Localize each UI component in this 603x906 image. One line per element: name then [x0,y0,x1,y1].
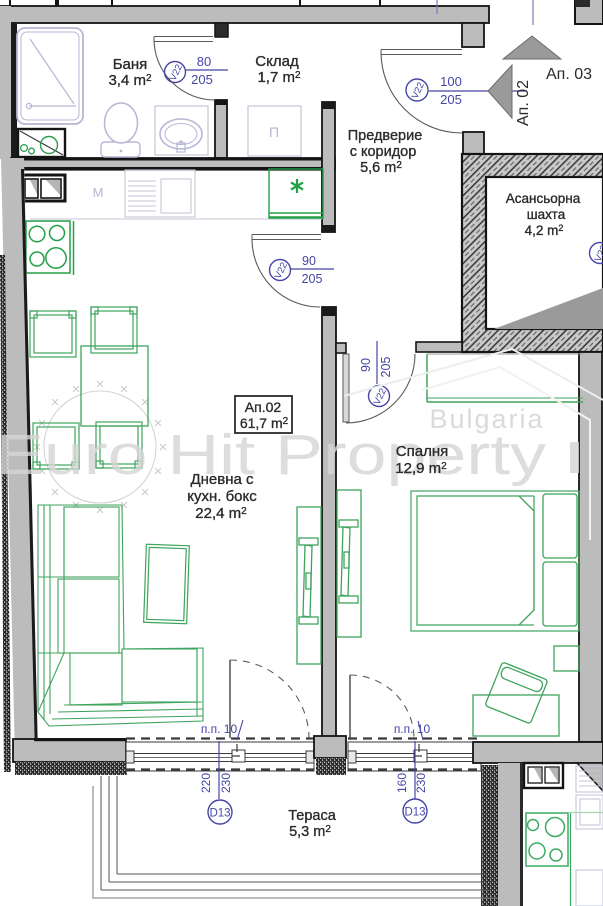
svg-text:22,4 m2: 22,4 m2 [195,505,247,522]
svg-text:шахта: шахта [527,207,566,222]
svg-text:Предверие: Предверие [348,128,423,144]
svg-text:1,7 m2: 1,7 m2 [257,69,301,86]
svg-text:Тераса: Тераса [288,808,336,824]
svg-text:Склад: Склад [255,53,299,70]
svg-text:160: 160 [395,773,409,793]
svg-text:Ап. 02: Ап. 02 [515,80,532,126]
svg-text:100: 100 [440,74,462,89]
svg-text:Асансьорна: Асансьорна [506,191,581,206]
svg-text:D13: D13 [209,808,230,820]
svg-text:Ап.02: Ап.02 [245,399,282,415]
svg-text:Ап. 03: Ап. 03 [546,66,592,83]
svg-text:230: 230 [414,773,428,793]
svg-text:205: 205 [379,357,393,378]
svg-text:205: 205 [191,72,213,87]
svg-text:Баня: Баня [113,56,148,73]
svg-text:Спалня: Спалня [396,443,448,460]
svg-text:205: 205 [440,92,462,107]
svg-text:220: 220 [199,773,213,793]
svg-text:3,4 m2: 3,4 m2 [108,72,152,89]
svg-text:п.п. 10: п.п. 10 [201,722,238,736]
svg-text:Euro Hit Property: Euro Hit Property [0,423,547,487]
svg-text:П: П [269,124,279,140]
svg-text:D13: D13 [404,807,425,819]
svg-text:5,6 m2: 5,6 m2 [360,160,402,176]
svg-text:80: 80 [197,54,211,69]
svg-text:5,3 m2: 5,3 m2 [289,824,331,840]
svg-text:Дневна с: Дневна с [190,471,254,488]
svg-text:М: М [93,185,104,200]
svg-text:4,2 m2: 4,2 m2 [525,223,564,238]
svg-text:90: 90 [302,254,316,268]
svg-text:с коридор: с коридор [350,144,417,160]
svg-text:90: 90 [359,358,373,372]
svg-text:кухн. бокс: кухн. бокс [187,488,257,505]
svg-text:п.п. 10: п.п. 10 [394,722,431,736]
svg-text:205: 205 [302,272,323,286]
svg-text:230: 230 [219,773,233,793]
svg-text:12,9 m2: 12,9 m2 [395,460,447,477]
